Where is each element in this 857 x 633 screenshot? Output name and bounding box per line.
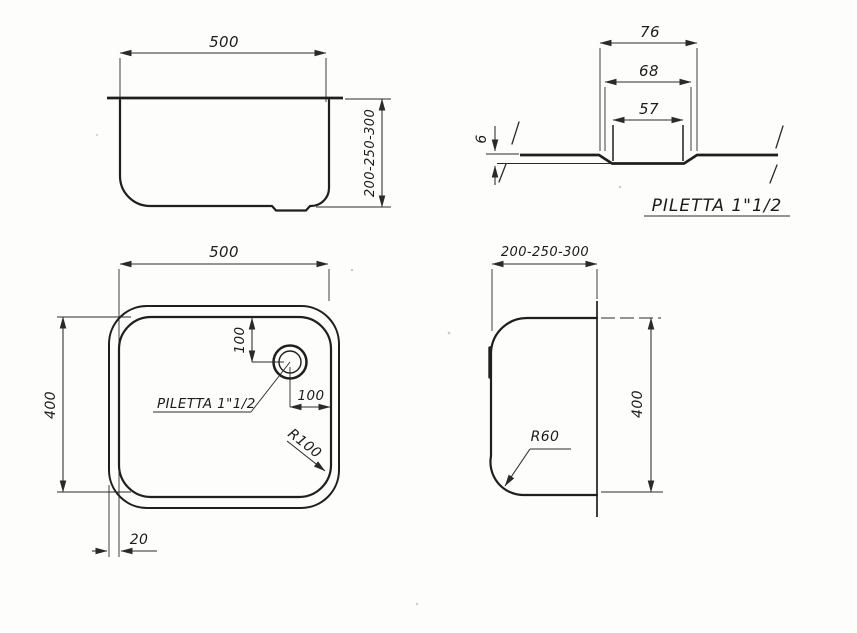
flange-width-label: 20: [130, 532, 149, 548]
drain-from-top-label: 100: [232, 327, 248, 354]
section-depth-label: 6: [474, 134, 490, 143]
plan-corner-radius-callout: R100: [285, 426, 325, 471]
section-break-marks: [499, 122, 783, 183]
section-57-label: 57: [639, 100, 659, 118]
front-basin-outline: [120, 100, 329, 211]
plan-length-label: 400: [43, 391, 59, 419]
plan-piletta-label: PILETTA 1"1/2: [157, 396, 256, 412]
front-width-label: 500: [209, 33, 239, 51]
side-length-label: 400: [630, 390, 646, 418]
section-76-label: 76: [640, 23, 660, 41]
dimension-front-width: 500: [120, 33, 326, 102]
drain-section-view: 76 68 57 6: [474, 23, 790, 216]
front-depth-label: 200-250-300: [363, 109, 378, 197]
dimension-side-length: 400: [601, 318, 663, 492]
drain-from-right-label: 100: [298, 388, 325, 404]
side-corner-radius-callout: R60: [505, 429, 571, 486]
side-profile-view: 200-250-300 400 R60: [490, 245, 663, 517]
dimension-section-57: 57: [613, 100, 683, 161]
side-depth-label: 200-250-300: [501, 245, 589, 260]
drawing-sheet: 500 200-250-300 76 68 57: [0, 0, 857, 633]
dimension-section-depth-6: 6: [474, 126, 495, 185]
scan-specks: [96, 134, 621, 605]
dimension-front-depth: 200-250-300: [316, 99, 391, 207]
plan-view: 500 400 100 100 R100 PI: [43, 243, 339, 557]
section-title: PILETTA 1"1/2: [644, 196, 790, 216]
section-piletta-label: PILETTA 1"1/2: [652, 196, 783, 216]
section-68-label: 68: [639, 62, 659, 80]
dimension-plan-length: 400: [43, 317, 131, 492]
section-sheet-profile: [520, 155, 778, 164]
dimension-drain-from-right: 100: [290, 367, 330, 407]
plan-width-label: 500: [209, 243, 239, 261]
front-elevation-view: 500 200-250-300: [107, 33, 391, 211]
side-bowl-outline: [490, 318, 597, 495]
sink-technical-drawing: 500 200-250-300 76 68 57: [0, 0, 857, 633]
side-corner-radius-label: R60: [531, 429, 560, 445]
plan-drain-callout: PILETTA 1"1/2: [153, 362, 290, 412]
